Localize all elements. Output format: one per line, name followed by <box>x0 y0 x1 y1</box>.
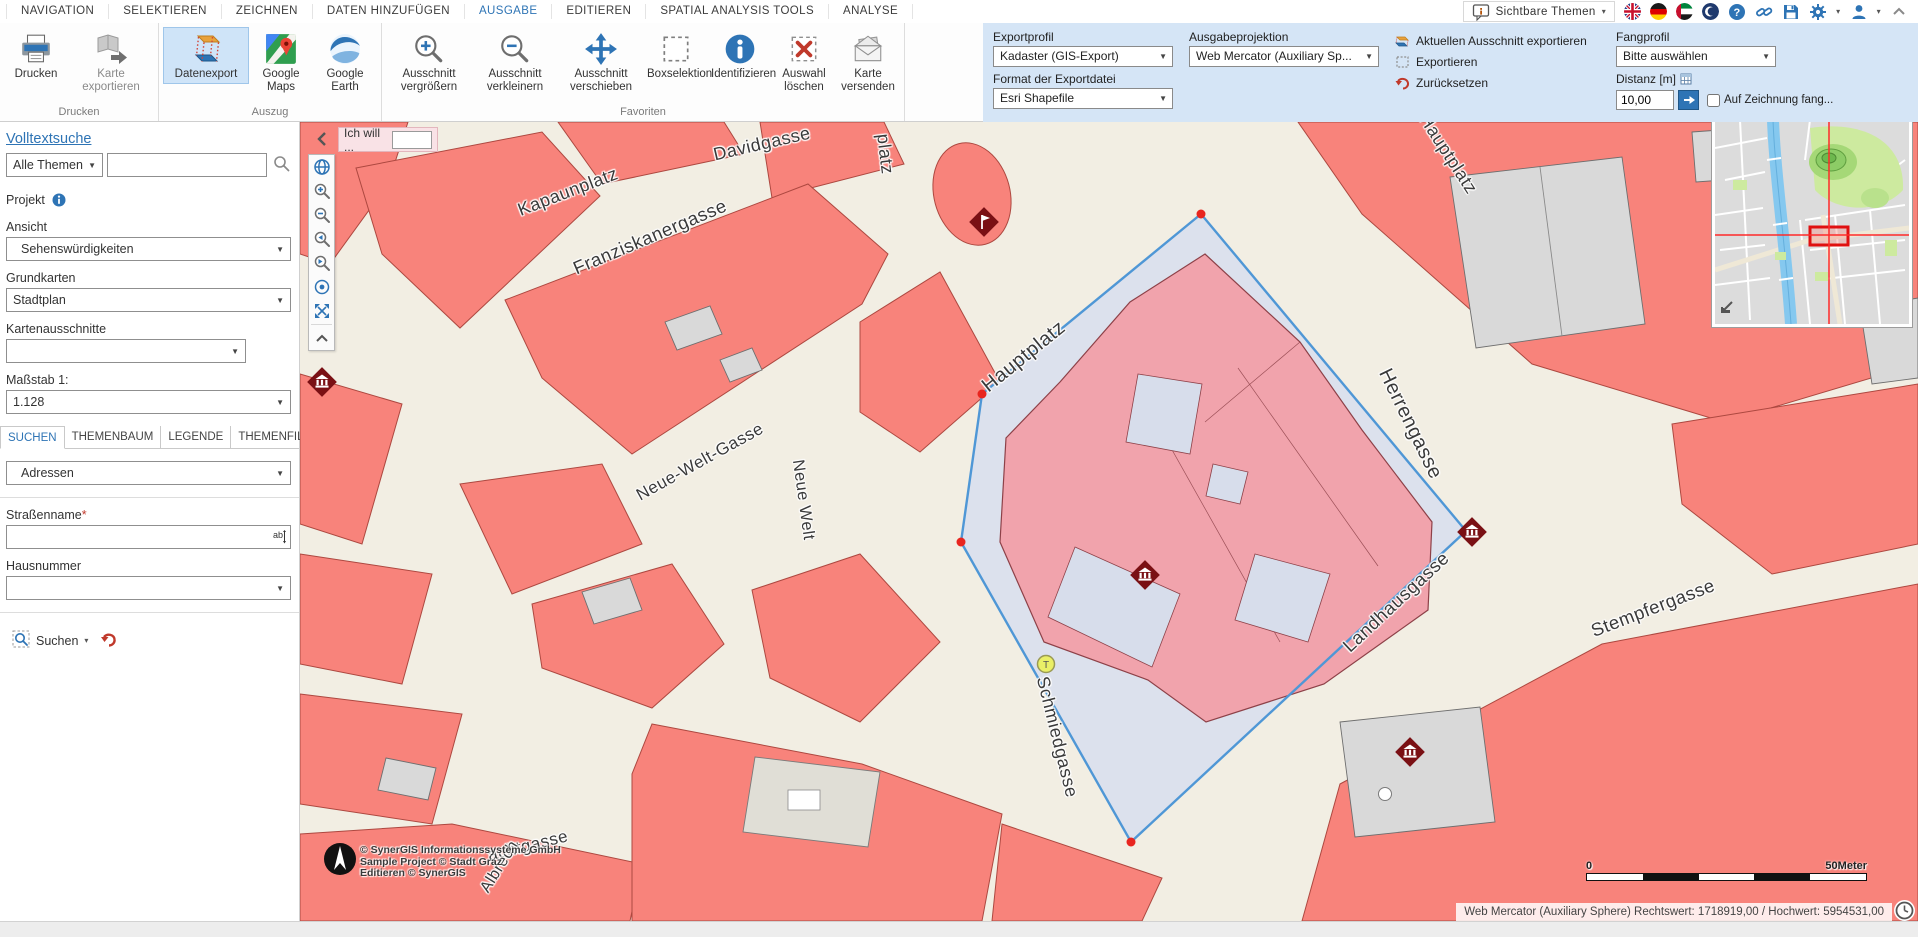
chevron-down-icon: ▾ <box>84 636 88 645</box>
google-maps-button[interactable]: Google Maps <box>249 27 313 97</box>
ausschnitt-verschieben-label: Ausschnitt verschieben <box>570 68 632 93</box>
required-asterisk: * <box>82 508 87 522</box>
building-dome <box>1379 788 1392 801</box>
zoom-out-button[interactable] <box>309 203 334 227</box>
visible-themes-label: Sichtbare Themen <box>1496 6 1596 18</box>
copyright-line: © SynerGIS Informationssysteme GmbH <box>360 845 561 857</box>
group-label-drucken: Drucken <box>4 105 154 121</box>
suchen-label: Suchen <box>36 634 78 648</box>
ich-will-input[interactable] <box>392 131 432 149</box>
alphabetic-sort-icon[interactable]: ab <box>272 529 288 548</box>
zuruecksetzen-button[interactable]: Zurücksetzen <box>1395 76 1600 90</box>
user-icon[interactable] <box>1850 3 1868 21</box>
volltextsuche-title[interactable]: Volltextsuche <box>6 131 299 147</box>
center-map-button[interactable] <box>309 275 334 299</box>
menu-analyse[interactable]: ANALYSE <box>829 4 913 19</box>
svg-text:?: ? <box>1734 7 1741 19</box>
distanz-label: Distanz [m] <box>1616 72 1846 88</box>
tram-stop-marker[interactable]: T <box>1038 656 1055 673</box>
grundkarten-value: Stadtplan <box>13 293 66 307</box>
zoom-previous-button[interactable] <box>309 227 334 251</box>
strassenname-input[interactable] <box>6 525 291 549</box>
ausschnitt-verschieben-button[interactable]: Ausschnitt verschieben <box>558 27 644 97</box>
distanz-row: Auf Zeichnung fang... <box>1616 90 1846 110</box>
menu-bar-right: Sichtbare Themen ▾ ? <box>1463 1 1918 22</box>
flag-uae-icon[interactable] <box>1676 3 1693 20</box>
auswahl-loeschen-label: Auswahl löschen <box>782 68 825 93</box>
menu-bar: NAVIGATION SELEKTIEREN ZEICHNEN DATEN HI… <box>0 0 1918 23</box>
ansicht-label: Ansicht <box>6 220 293 234</box>
toolbar-collapse-up-button[interactable] <box>309 326 334 350</box>
exportieren-label: Exportieren <box>1416 55 1477 69</box>
menu-ausgabe[interactable]: AUSGABE <box>465 4 552 19</box>
link-icon[interactable] <box>1755 3 1773 21</box>
webgis-app: NAVIGATION SELEKTIEREN ZEICHNEN DATEN HI… <box>0 0 1918 937</box>
menu-navigation[interactable]: NAVIGATION <box>6 4 109 19</box>
adressen-value: Adressen <box>21 466 74 480</box>
ansicht-value: Sehenswürdigkeiten <box>21 242 134 256</box>
aktuellen-ausschnitt-exportieren-button[interactable]: Aktuellen Ausschnitt exportieren <box>1395 34 1600 48</box>
strassenname-label: Straßenname* <box>6 508 293 522</box>
auf-zeichnung-checkbox[interactable] <box>1707 94 1720 107</box>
undo-arrow-icon <box>1395 76 1410 90</box>
ausschnitt-verkleinern-label: Ausschnitt verkleinern <box>487 68 543 93</box>
search-in-box-icon <box>12 630 30 651</box>
grundkarten-dropdown[interactable]: Stadtplan▼ <box>6 288 291 312</box>
flag-uk-icon[interactable] <box>1624 3 1641 20</box>
bottom-status-strip <box>0 921 1918 937</box>
chevron-down-icon: ▼ <box>88 154 96 177</box>
zoom-in-button[interactable] <box>309 179 334 203</box>
drucken-button[interactable]: Drucken <box>4 27 68 84</box>
format-dropdown[interactable]: Esri Shapefile▼ <box>993 88 1173 109</box>
themen-value: Alle Themen <box>13 158 83 172</box>
google-maps-icon <box>264 32 298 64</box>
chevron-down-icon: ▾ <box>1602 7 1606 16</box>
chevron-down-icon: ▼ <box>1159 47 1167 67</box>
zoom-out-icon <box>498 32 532 64</box>
distanz-input[interactable] <box>1616 90 1674 110</box>
volltext-search-input[interactable] <box>107 153 267 177</box>
ribbon-group-favoriten: Ausschnitt vergrößern Ausschnitt verklei… <box>382 23 905 121</box>
kartenausschnitte-label: Kartenausschnitte <box>6 322 293 336</box>
export-actions-column: Aktuellen Ausschnitt exportieren Exporti… <box>1395 28 1600 122</box>
group-label-auszug: Auszug <box>163 105 377 121</box>
ansicht-dropdown[interactable]: Sehenswürdigkeiten▼ <box>6 237 291 261</box>
data-export-box-icon <box>189 32 223 64</box>
apply-distance-button[interactable] <box>1678 90 1699 110</box>
massstab-dropdown[interactable]: 1.128▼ <box>6 390 291 414</box>
full-extent-button[interactable] <box>309 299 334 323</box>
boxselektion-button[interactable]: Boxselektion <box>644 27 708 84</box>
ich-will-box[interactable]: Ich will ... <box>338 127 438 152</box>
zuruecksetzen-label: Zurücksetzen <box>1416 76 1488 90</box>
group-label-favoriten: Favoriten <box>386 105 900 121</box>
menu-daten-hinzufuegen[interactable]: DATEN HINZUFÜGEN <box>313 4 465 19</box>
karte-versenden-label: Karte versenden <box>841 68 895 93</box>
coordinate-status-bar: Web Mercator (Auxiliary Sphere) Rechtswe… <box>1456 903 1892 921</box>
ribbon-group-auszug: Datenexport Google Maps Google Earth Aus… <box>159 23 382 121</box>
projection-column: Ausgabeprojektion Web Mercator (Auxiliar… <box>1189 28 1379 122</box>
tab-suchen[interactable]: SUCHEN <box>0 426 65 449</box>
visible-themes-button[interactable]: Sichtbare Themen ▾ <box>1463 1 1616 22</box>
pan-arrows-icon <box>584 32 618 64</box>
overview-map[interactable] <box>1711 122 1913 328</box>
flag-crescent-icon[interactable] <box>1702 3 1719 20</box>
fangprofil-column: Fangprofil Bitte auswählen▼ Distanz [m] … <box>1616 28 1846 122</box>
overview-collapse-icon[interactable] <box>1719 299 1735 320</box>
flag-germany-icon[interactable] <box>1650 3 1667 20</box>
fangprofil-dropdown[interactable]: Bitte auswählen▼ <box>1616 46 1776 67</box>
aktuellen-ausschnitt-label: Aktuellen Ausschnitt exportieren <box>1416 34 1587 48</box>
ausschnitt-vergroessern-button[interactable]: Ausschnitt vergrößern <box>386 27 472 97</box>
export-panel: Exportprofil Kadaster (GIS-Export)▼ Form… <box>983 23 1918 122</box>
map-export-icon <box>94 32 128 64</box>
scale-end-label: 50Meter <box>1825 860 1867 872</box>
datenexport-label: Datenexport <box>175 68 238 80</box>
chevron-down-icon: ▼ <box>1762 47 1770 67</box>
ribbon-group-drucken: Drucken Karte exportieren Drucken <box>0 23 159 121</box>
fangprofil-label: Fangprofil <box>1616 30 1846 44</box>
exportieren-button[interactable]: Exportieren <box>1395 55 1600 69</box>
copyright-line: Editieren © SynerGIS <box>360 868 561 880</box>
menu-selektieren[interactable]: SELEKTIEREN <box>109 4 222 19</box>
ausschnitt-verkleinern-button[interactable]: Ausschnitt verkleinern <box>472 27 558 97</box>
exportprofil-value: Kadaster (GIS-Export) <box>1000 49 1119 63</box>
projekt-row: Projekt <box>6 193 293 210</box>
export-extent-icon <box>1395 34 1410 48</box>
zoom-next-button[interactable] <box>309 251 334 275</box>
map-toolbar <box>308 154 335 351</box>
collapse-ribbon-icon[interactable] <box>1890 3 1908 21</box>
exportprofil-label: Exportprofil <box>993 30 1173 44</box>
scale-bar-segments <box>1586 873 1867 881</box>
grid-table-icon[interactable] <box>1680 73 1692 88</box>
suchen-button[interactable]: Suchen ▾ <box>8 627 92 654</box>
format-value: Esri Shapefile <box>1000 91 1074 105</box>
search-icon[interactable] <box>273 155 290 175</box>
box-selection-icon <box>659 32 693 64</box>
chevron-down-icon: ▼ <box>1365 47 1373 67</box>
auswahl-loeschen-button[interactable]: Auswahl löschen <box>772 27 836 97</box>
svg-text:ab: ab <box>273 530 283 540</box>
hausnummer-label: Hausnummer <box>6 559 293 573</box>
identify-info-icon <box>723 32 757 64</box>
format-label: Format der Exportdatei <box>993 72 1173 86</box>
google-earth-button[interactable]: Google Earth <box>313 27 377 97</box>
ausschnitt-vergroessern-label: Ausschnitt vergrößern <box>401 68 457 93</box>
envelope-icon <box>851 32 885 64</box>
adressen-dropdown[interactable]: Adressen▼ <box>6 461 291 485</box>
massstab-value: 1.128 <box>13 395 44 409</box>
clear-selection-icon <box>787 32 821 64</box>
user-dropdown-icon[interactable]: ▾ <box>1877 7 1881 16</box>
projektion-dropdown[interactable]: Web Mercator (Auxiliary Sp...▼ <box>1189 46 1379 67</box>
reset-search-icon[interactable] <box>100 632 117 650</box>
identifizieren-label: Identifizieren <box>711 68 776 80</box>
map-copyright: © SynerGIS Informationssysteme GmbH Samp… <box>360 845 561 880</box>
speech-bubble-info-icon <box>1472 3 1490 21</box>
projektion-value: Web Mercator (Auxiliary Sp... <box>1196 49 1352 63</box>
left-sidebar: Volltextsuche Alle Themen▼ Projekt Ansic… <box>0 122 300 921</box>
google-maps-label: Google Maps <box>262 68 299 93</box>
building-court <box>788 790 820 810</box>
projekt-label: Projekt <box>6 193 45 207</box>
hausnummer-dropdown[interactable]: ▼ <box>6 576 291 600</box>
globe-overview-button[interactable] <box>309 155 334 179</box>
google-earth-icon <box>328 32 362 64</box>
gear-dropdown-icon[interactable]: ▾ <box>1836 7 1840 16</box>
menu-editieren[interactable]: EDITIEREN <box>552 4 646 19</box>
info-icon[interactable] <box>52 193 66 210</box>
export-profile-column: Exportprofil Kadaster (GIS-Export)▼ Form… <box>993 28 1173 122</box>
exportprofil-dropdown[interactable]: Kadaster (GIS-Export)▼ <box>993 46 1173 67</box>
divider <box>0 497 299 498</box>
karte-exportieren-label: Karte exportieren <box>82 68 140 93</box>
karte-exportieren-button[interactable]: Karte exportieren <box>68 27 154 97</box>
north-arrow-icon <box>323 842 357 881</box>
drucken-label: Drucken <box>15 68 58 80</box>
fangprofil-value: Bitte auswählen <box>1623 49 1708 63</box>
map-viewport[interactable]: T ergasse Kapaunplatz Davidgasse Franzis… <box>300 122 1918 921</box>
tab-legende[interactable]: LEGENDE <box>161 426 231 448</box>
grundkarten-label: Grundkarten <box>6 271 293 285</box>
google-earth-label: Google Earth <box>326 68 363 93</box>
ich-will-label: Ich will ... <box>344 126 387 154</box>
zoom-in-icon <box>412 32 446 64</box>
clock-icon[interactable] <box>1894 900 1915 921</box>
printer-icon <box>19 32 53 64</box>
scale-bar: 0 50Meter <box>1586 860 1867 881</box>
sidebar-tabs: SUCHEN THEMENBAUM LEGENDE THEMENFILTER <box>0 426 299 449</box>
menu-zeichnen[interactable]: ZEICHNEN <box>222 4 313 19</box>
datenexport-button[interactable]: Datenexport <box>163 27 249 84</box>
map-canvas[interactable]: T <box>300 122 1918 921</box>
boxselektion-label: Boxselektion <box>647 68 712 80</box>
overview-map-canvas <box>1715 122 1909 324</box>
save-icon[interactable] <box>1782 3 1800 21</box>
massstab-label: Maßstab 1: <box>6 373 293 387</box>
sidebar-collapse-button[interactable] <box>312 130 332 148</box>
menu-spatial-analysis[interactable]: SPATIAL ANALYSIS TOOLS <box>646 4 829 19</box>
projektion-label: Ausgabeprojektion <box>1189 30 1379 44</box>
auf-zeichnung-label: Auf Zeichnung fang... <box>1724 94 1833 106</box>
settings-gear-icon[interactable] <box>1809 3 1827 21</box>
divider <box>311 324 332 325</box>
chevron-down-icon: ▼ <box>1159 89 1167 109</box>
svg-text:T: T <box>1043 660 1049 671</box>
karte-versenden-button[interactable]: Karte versenden <box>836 27 900 97</box>
kartenausschnitte-dropdown[interactable]: ▼ <box>6 339 246 363</box>
scale-start-label: 0 <box>1586 860 1592 872</box>
divider <box>0 612 299 613</box>
help-icon[interactable]: ? <box>1728 3 1746 21</box>
tab-themenbaum[interactable]: THEMENBAUM <box>65 426 162 448</box>
export-selection-icon <box>1395 55 1410 69</box>
themen-dropdown[interactable]: Alle Themen▼ <box>6 153 103 177</box>
ribbon-toolbar: Drucken Karte exportieren Drucken Datene… <box>0 23 1918 122</box>
identifizieren-button[interactable]: Identifizieren <box>708 27 772 84</box>
